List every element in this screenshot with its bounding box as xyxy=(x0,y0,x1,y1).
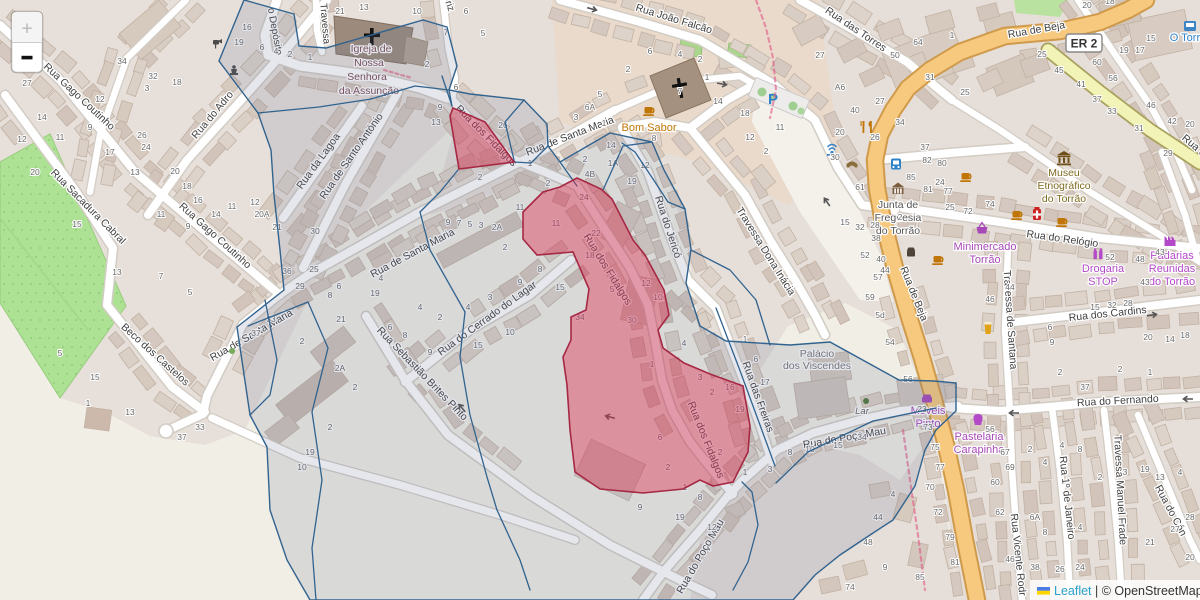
svg-text:15: 15 xyxy=(90,372,100,382)
svg-text:60: 60 xyxy=(1092,57,1102,67)
svg-text:33: 33 xyxy=(195,422,205,432)
svg-text:27: 27 xyxy=(22,78,32,88)
svg-text:7: 7 xyxy=(159,271,164,281)
svg-text:19: 19 xyxy=(1140,464,1150,474)
svg-text:13: 13 xyxy=(359,2,369,12)
svg-text:20A: 20A xyxy=(254,209,269,219)
svg-text:24: 24 xyxy=(1075,562,1085,572)
svg-text:77: 77 xyxy=(943,186,953,196)
svg-text:3: 3 xyxy=(1123,467,1128,477)
svg-text:62: 62 xyxy=(995,507,1005,517)
svg-text:26: 26 xyxy=(870,132,880,142)
svg-text:Leaflet: Leaflet xyxy=(1054,584,1092,598)
svg-text:27: 27 xyxy=(875,96,885,106)
svg-text:11: 11 xyxy=(776,122,785,132)
svg-text:20: 20 xyxy=(1185,119,1195,129)
svg-text:Minimercado: Minimercado xyxy=(954,241,1017,253)
svg-text:15: 15 xyxy=(72,219,82,229)
svg-text:14: 14 xyxy=(1165,334,1175,344)
svg-text:2: 2 xyxy=(898,212,903,222)
svg-text:8: 8 xyxy=(1043,527,1048,537)
svg-text:2: 2 xyxy=(1058,367,1063,377)
svg-text:11: 11 xyxy=(228,201,237,211)
svg-text:9: 9 xyxy=(883,562,888,572)
svg-text:81: 81 xyxy=(923,184,933,194)
svg-text:31: 31 xyxy=(925,72,935,82)
svg-text:38: 38 xyxy=(871,233,881,243)
svg-text:| © OpenStreetMap: | © OpenStreetMap xyxy=(1095,584,1200,598)
svg-text:21: 21 xyxy=(1145,537,1155,547)
svg-text:Pastelaria: Pastelaria xyxy=(955,431,1005,443)
svg-text:12: 12 xyxy=(745,132,755,142)
svg-text:72: 72 xyxy=(963,206,973,216)
svg-text:17: 17 xyxy=(105,147,115,157)
svg-text:12: 12 xyxy=(250,197,260,207)
svg-text:2: 2 xyxy=(1118,364,1123,374)
svg-text:54: 54 xyxy=(885,337,895,347)
svg-text:52: 52 xyxy=(860,250,870,260)
svg-text:6A: 6A xyxy=(1030,512,1041,522)
svg-text:8: 8 xyxy=(1078,444,1083,454)
svg-text:28: 28 xyxy=(870,220,880,230)
svg-text:85: 85 xyxy=(915,572,925,582)
svg-text:32: 32 xyxy=(1107,300,1117,310)
svg-text:16: 16 xyxy=(193,195,203,205)
svg-text:74: 74 xyxy=(845,582,855,592)
svg-text:79: 79 xyxy=(945,532,955,542)
svg-text:24: 24 xyxy=(141,142,151,152)
svg-text:7: 7 xyxy=(678,86,683,96)
svg-text:2: 2 xyxy=(1098,472,1103,482)
svg-text:17: 17 xyxy=(1135,45,1145,55)
svg-text:85: 85 xyxy=(906,172,916,182)
svg-text:37: 37 xyxy=(177,432,187,442)
svg-text:9: 9 xyxy=(1050,337,1055,347)
svg-text:52: 52 xyxy=(1105,252,1115,262)
svg-text:37: 37 xyxy=(920,142,930,152)
svg-text:72: 72 xyxy=(933,507,943,517)
svg-text:do Torrão: do Torrão xyxy=(1042,193,1086,205)
svg-text:44: 44 xyxy=(1005,282,1015,292)
svg-text:1: 1 xyxy=(950,30,955,40)
svg-text:Reunidas: Reunidas xyxy=(1149,263,1196,275)
svg-text:13: 13 xyxy=(112,267,122,277)
svg-text:26: 26 xyxy=(137,130,147,140)
svg-text:74: 74 xyxy=(985,199,995,209)
svg-text:1: 1 xyxy=(602,118,607,128)
svg-text:46: 46 xyxy=(1005,554,1015,564)
svg-text:25: 25 xyxy=(945,202,955,212)
svg-text:42: 42 xyxy=(1167,116,1177,126)
svg-text:28: 28 xyxy=(1185,512,1195,522)
svg-text:5: 5 xyxy=(58,348,63,358)
svg-text:20: 20 xyxy=(1082,0,1092,10)
svg-text:41: 41 xyxy=(1076,79,1086,89)
svg-text:30: 30 xyxy=(830,152,840,162)
svg-text:14: 14 xyxy=(37,112,47,122)
svg-text:5: 5 xyxy=(188,287,193,297)
svg-text:6A: 6A xyxy=(585,102,596,112)
svg-text:1: 1 xyxy=(1148,367,1153,377)
svg-text:28: 28 xyxy=(1123,298,1133,308)
svg-text:4: 4 xyxy=(1043,457,1048,467)
svg-text:61: 61 xyxy=(855,182,865,192)
svg-text:46: 46 xyxy=(985,294,995,304)
svg-text:5d: 5d xyxy=(875,310,885,320)
svg-text:13: 13 xyxy=(130,167,140,177)
svg-text:27: 27 xyxy=(1170,524,1180,534)
svg-text:67: 67 xyxy=(1000,447,1010,457)
svg-text:29: 29 xyxy=(1163,148,1173,158)
svg-text:13: 13 xyxy=(125,407,135,417)
svg-text:40: 40 xyxy=(876,254,886,264)
svg-text:14: 14 xyxy=(713,96,723,106)
svg-text:69: 69 xyxy=(1005,462,1015,472)
svg-text:+: + xyxy=(21,19,32,40)
svg-text:56: 56 xyxy=(985,424,995,434)
svg-text:2: 2 xyxy=(1028,444,1033,454)
svg-text:57: 57 xyxy=(873,272,883,282)
svg-text:10: 10 xyxy=(412,6,422,16)
svg-text:64: 64 xyxy=(913,37,923,47)
svg-text:56: 56 xyxy=(1108,73,1118,83)
svg-text:77: 77 xyxy=(935,462,945,472)
svg-text:O Torrã: O Torrã xyxy=(1170,32,1200,44)
svg-text:14: 14 xyxy=(211,209,221,219)
svg-text:50: 50 xyxy=(890,50,900,60)
svg-text:6: 6 xyxy=(464,6,469,16)
svg-text:do Torrão: do Torrão xyxy=(1149,276,1195,288)
svg-text:32: 32 xyxy=(855,222,865,232)
svg-text:32: 32 xyxy=(148,71,158,81)
svg-text:34: 34 xyxy=(117,56,127,66)
svg-text:18: 18 xyxy=(182,181,192,191)
svg-text:20: 20 xyxy=(835,127,845,137)
svg-text:15: 15 xyxy=(840,217,850,227)
svg-text:ER 2: ER 2 xyxy=(1071,37,1098,51)
svg-text:Torrão: Torrão xyxy=(969,254,1000,266)
svg-text:1: 1 xyxy=(705,72,710,82)
svg-text:80: 80 xyxy=(937,158,947,168)
svg-text:25: 25 xyxy=(1037,49,1047,59)
svg-text:38: 38 xyxy=(1030,562,1040,572)
svg-text:20: 20 xyxy=(1143,332,1153,342)
svg-text:4: 4 xyxy=(1060,440,1065,450)
svg-text:20: 20 xyxy=(170,166,180,176)
svg-text:48: 48 xyxy=(1135,254,1145,264)
svg-text:15: 15 xyxy=(1090,302,1100,312)
svg-text:43: 43 xyxy=(1155,247,1165,257)
svg-text:STOP: STOP xyxy=(1088,276,1118,288)
svg-text:15: 15 xyxy=(1146,33,1156,43)
svg-text:9: 9 xyxy=(186,221,191,231)
svg-text:11: 11 xyxy=(157,209,166,219)
svg-text:6: 6 xyxy=(648,46,653,56)
svg-text:2: 2 xyxy=(698,54,703,64)
svg-text:5: 5 xyxy=(598,89,603,99)
svg-text:12: 12 xyxy=(17,134,27,144)
svg-text:2: 2 xyxy=(764,146,769,156)
svg-text:34: 34 xyxy=(895,117,905,127)
svg-text:33: 33 xyxy=(1107,106,1117,116)
svg-text:18: 18 xyxy=(740,108,750,118)
svg-text:40: 40 xyxy=(850,105,860,115)
svg-text:5: 5 xyxy=(481,28,486,38)
svg-text:Etnográfico: Etnográfico xyxy=(1037,180,1090,192)
svg-text:18: 18 xyxy=(172,77,182,87)
svg-text:20: 20 xyxy=(1185,552,1195,562)
svg-text:2: 2 xyxy=(626,64,631,74)
svg-text:9: 9 xyxy=(88,122,93,132)
svg-text:26: 26 xyxy=(1055,564,1065,574)
svg-text:70: 70 xyxy=(925,482,935,492)
svg-text:21: 21 xyxy=(335,6,345,16)
svg-text:1: 1 xyxy=(86,398,91,408)
svg-text:4: 4 xyxy=(678,49,683,59)
svg-text:3: 3 xyxy=(574,112,579,122)
svg-text:Bom Sabor: Bom Sabor xyxy=(621,122,676,134)
svg-text:43: 43 xyxy=(1140,277,1150,287)
svg-text:Drogaria: Drogaria xyxy=(1082,263,1125,275)
svg-text:75: 75 xyxy=(930,442,940,452)
svg-text:do Torrão: do Torrão xyxy=(876,225,920,237)
svg-text:12: 12 xyxy=(95,94,105,104)
svg-text:Museu: Museu xyxy=(1048,167,1080,179)
svg-text:18: 18 xyxy=(1180,330,1190,340)
svg-text:27: 27 xyxy=(815,50,825,60)
svg-text:59: 59 xyxy=(865,292,875,302)
svg-text:6: 6 xyxy=(1048,322,1053,332)
svg-text:Junta de: Junta de xyxy=(878,199,918,211)
svg-text:A6: A6 xyxy=(835,82,846,92)
svg-text:31: 31 xyxy=(1134,123,1144,133)
svg-text:18: 18 xyxy=(1105,0,1115,6)
svg-text:13: 13 xyxy=(1155,472,1165,482)
svg-text:20: 20 xyxy=(30,167,40,177)
svg-text:4: 4 xyxy=(1078,522,1083,532)
svg-text:4: 4 xyxy=(1178,467,1183,477)
svg-text:46: 46 xyxy=(1146,100,1156,110)
svg-text:37: 37 xyxy=(1092,94,1102,104)
svg-text:37: 37 xyxy=(1080,382,1090,392)
svg-text:82: 82 xyxy=(922,155,932,165)
svg-text:3: 3 xyxy=(145,83,150,93)
svg-text:60: 60 xyxy=(990,477,1000,487)
svg-text:11: 11 xyxy=(56,132,65,142)
svg-text:25: 25 xyxy=(960,87,970,97)
svg-text:81: 81 xyxy=(950,557,960,567)
svg-text:45: 45 xyxy=(1054,65,1064,75)
svg-text:19: 19 xyxy=(1119,45,1129,55)
svg-text:Carapinha: Carapinha xyxy=(954,444,1006,456)
